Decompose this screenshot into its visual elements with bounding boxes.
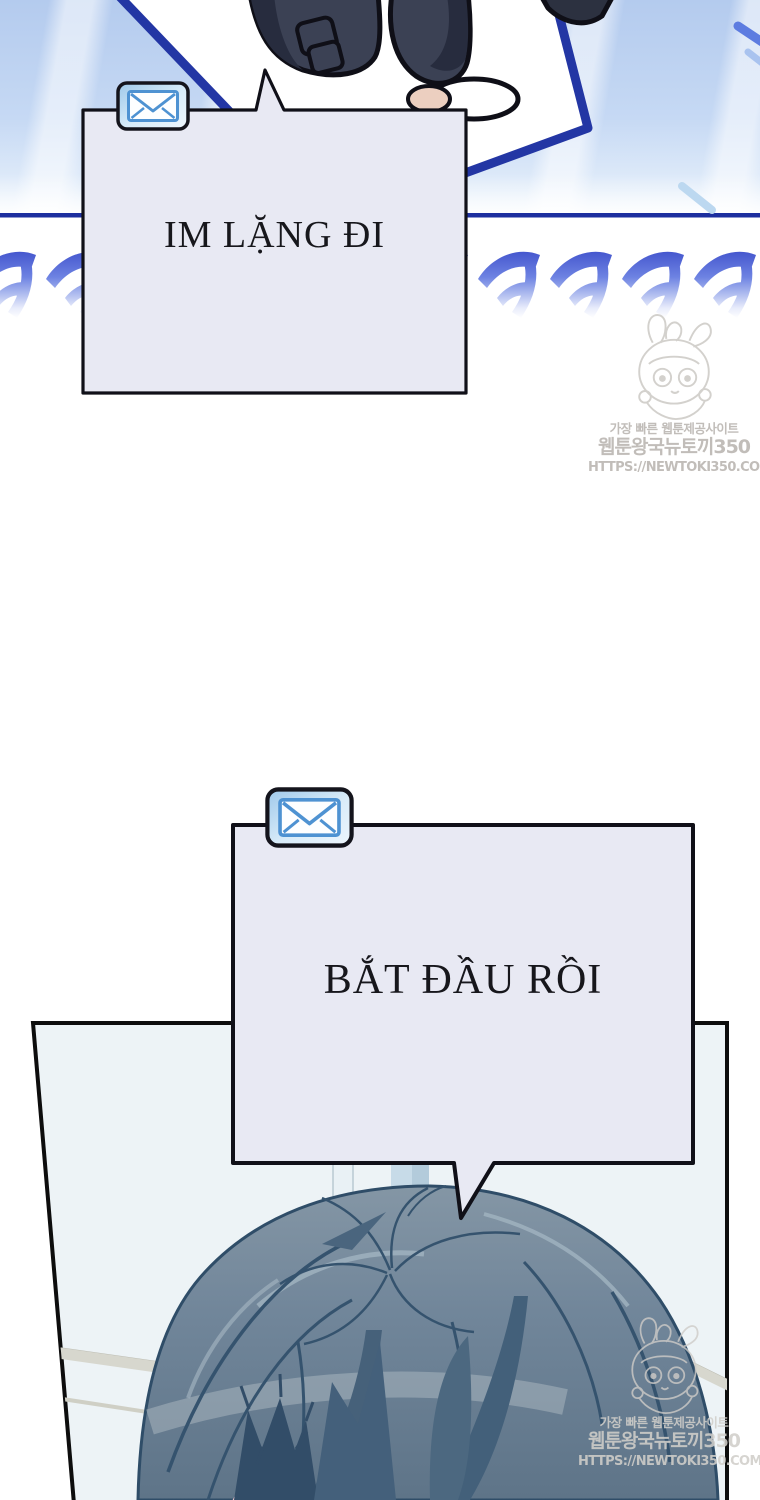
speech-bubble-1-text: IM LẶNG ĐI [83, 212, 466, 258]
watermark-tagline: 가장 빠른 웹툰제공사이트 [578, 1415, 750, 1430]
site-watermark: 가장 빠른 웹툰제공사이트 웹툰왕국뉴토끼350 HTTPS://NEWTOKI… [578, 1310, 750, 1470]
watermark-sitename: 웹툰왕국뉴토끼350 [588, 436, 760, 459]
watermark-mascot-icon [616, 306, 732, 420]
watermark-mascot-icon [611, 1310, 717, 1414]
speedline-dashes [682, 26, 760, 210]
watermark-url: HTTPS://NEWTOKI350.COM [578, 1453, 750, 1470]
mail-icon [265, 787, 354, 848]
watermark-tagline: 가장 빠른 웹툰제공사이트 [588, 421, 760, 436]
character-foot [408, 86, 450, 112]
site-watermark: 가장 빠른 웹툰제공사이트 웹툰왕국뉴토끼350 HTTPS://NEWTOKI… [588, 306, 760, 476]
speech-bubble-2-text: BẮT ĐẦU RỒI [233, 954, 693, 1006]
comic-page: IM LẶNG ĐI 가장 빠른 웹툰제공사이트 웹툰왕국뉴토끼350 HTTP… [0, 0, 760, 1500]
speech-bubble-2 [233, 825, 693, 1218]
mail-icon [116, 81, 190, 131]
watermark-sitename: 웹툰왕국뉴토끼350 [578, 1430, 750, 1453]
watermark-url: HTTPS://NEWTOKI350.COM [588, 459, 760, 476]
